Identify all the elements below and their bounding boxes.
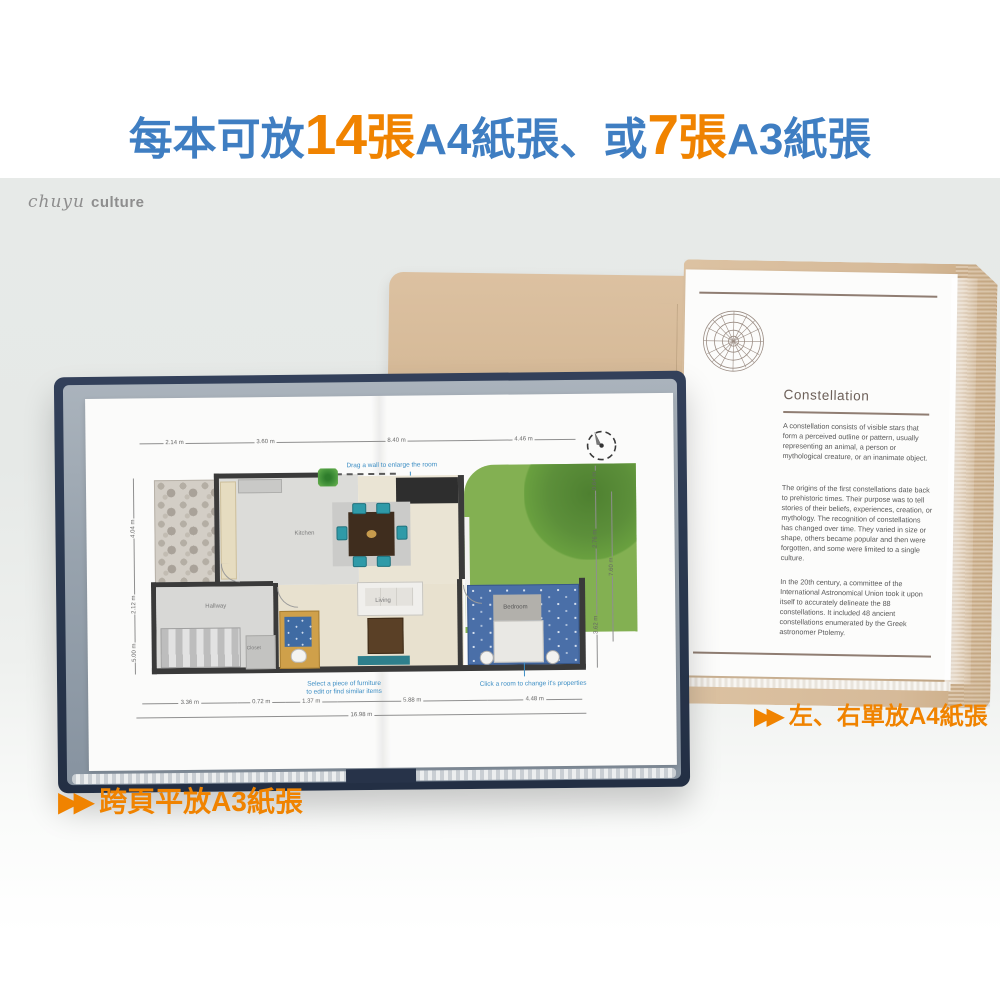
a3-floorplan-sheet: 2.14 m 3.60 m 8.40 m 4.46 m Drag a wall … bbox=[85, 393, 677, 771]
tv-console bbox=[367, 618, 403, 654]
dining-chair bbox=[352, 503, 366, 514]
constellation-page: Constellation A constellation consists o… bbox=[679, 269, 958, 680]
dim-top-3: 8.40 m bbox=[321, 437, 471, 445]
brand-script: chuyu bbox=[28, 192, 85, 212]
a3-folder-inner: 2.14 m 3.60 m 8.40 m 4.46 m Drag a wall … bbox=[63, 379, 681, 785]
dim-right-2: 2.76 m bbox=[592, 496, 599, 582]
caption-a3-label: 跨頁平放A3紙張 bbox=[99, 786, 303, 817]
garden-tree bbox=[524, 463, 638, 560]
bathroom-rug bbox=[284, 617, 311, 647]
dim-bottom-1: 3.36 m bbox=[142, 699, 237, 706]
page-bottom-rule bbox=[693, 652, 931, 658]
dim-left-2: 2.12 m bbox=[131, 578, 138, 630]
stairs bbox=[160, 627, 240, 668]
wall-bedroom-right bbox=[579, 578, 586, 668]
closet-floor bbox=[246, 635, 276, 669]
floor-plan: 2.14 m 3.60 m 8.40 m 4.46 m Drag a wall … bbox=[125, 411, 643, 756]
page-title: 每本可放14張A4紙張、或7張A3紙張 bbox=[0, 98, 1000, 169]
dim-bottom-3: 1.37 m bbox=[285, 698, 337, 705]
dining-chair bbox=[377, 556, 391, 567]
dim-left-1: 4.04 m bbox=[130, 478, 137, 578]
dim-bottom-5: 4.48 m bbox=[487, 696, 582, 703]
top-banner: 每本可放14張A4紙張、或7張A3紙張 bbox=[0, 0, 1000, 178]
wall-living-bedroom bbox=[457, 579, 463, 669]
dining-chair bbox=[336, 526, 347, 540]
toilet bbox=[291, 649, 307, 663]
table-centerpiece bbox=[366, 530, 376, 538]
dining-chair bbox=[396, 526, 407, 540]
potted-plant bbox=[318, 468, 338, 486]
bed-duvet bbox=[493, 620, 543, 663]
page-top-rule bbox=[699, 292, 937, 298]
bedside-table bbox=[546, 650, 560, 664]
plan-dimensions-bottom: 3.36 m 0.72 m 1.37 m 5.88 m 4.48 m bbox=[142, 696, 582, 707]
caption-a3-arrows-icon: ▶▶ bbox=[58, 786, 89, 817]
dim-top-1: 2.14 m bbox=[140, 440, 210, 447]
title-text-1: 每本可放 bbox=[129, 115, 305, 164]
living-label: Living bbox=[375, 598, 391, 604]
caption-a3: ▶▶跨頁平放A3紙張 bbox=[58, 780, 303, 820]
title-sheets-2: 張 bbox=[678, 111, 727, 165]
dim-right-3: 3.62 m bbox=[593, 582, 600, 668]
page-heading: Constellation bbox=[783, 387, 869, 403]
closet-label: Closet bbox=[247, 645, 261, 651]
media-bench bbox=[358, 656, 410, 666]
a4-folder: Constellation A constellation consists o… bbox=[676, 259, 998, 708]
title-text-3: A3紙張 bbox=[727, 115, 871, 164]
wall-lawn-left bbox=[458, 475, 465, 579]
title-number-14: 14 bbox=[305, 103, 366, 167]
product-photo: chuyuculture bbox=[0, 178, 1000, 1000]
dining-chair bbox=[353, 556, 367, 567]
title-sheets-1: 張 bbox=[366, 111, 415, 165]
page-paragraph-1: A constellation consists of visible star… bbox=[782, 421, 935, 463]
heading-rule bbox=[783, 411, 929, 415]
dining-chair bbox=[376, 503, 390, 514]
a3-spine bbox=[346, 769, 416, 784]
plan-dimensions-top: 2.14 m 3.60 m 8.40 m 4.46 m bbox=[140, 436, 576, 447]
dim-left-3: 5.00 m bbox=[131, 630, 137, 674]
title-text-2: A4紙張、或 bbox=[415, 115, 647, 164]
kitchen-counter-island bbox=[396, 477, 458, 504]
dim-bottom-2: 0.72 m bbox=[237, 699, 285, 706]
dim-bottom-4: 5.88 m bbox=[337, 697, 487, 705]
annotation-click: Click a room to change it's properties bbox=[458, 680, 608, 690]
annotation-drag: Drag a wall to enlarge the room bbox=[322, 461, 462, 471]
dim-top-4: 4.46 m bbox=[471, 436, 575, 443]
brand-word: culture bbox=[91, 194, 145, 211]
dim-top-2: 3.60 m bbox=[210, 439, 322, 446]
caption-a4-label: 左、右單放A4紙張 bbox=[789, 703, 988, 730]
dim-right-1: 0.64 m bbox=[592, 466, 598, 496]
annotation-select-line2: to edit or find similar items bbox=[274, 688, 414, 698]
plan-dimensions-left: 4.04 m 2.12 m 5.00 m bbox=[130, 478, 138, 674]
a3-folder: 2.14 m 3.60 m 8.40 m 4.46 m Drag a wall … bbox=[54, 371, 690, 794]
compass-icon bbox=[583, 427, 619, 463]
title-number-7: 7 bbox=[647, 103, 678, 167]
annotation-select: Select a piece of furniture to edit or f… bbox=[274, 680, 414, 698]
caption-a4-arrows-icon: ▶▶ bbox=[754, 703, 779, 730]
page-paragraph-3: In the 20th century, a committee of the … bbox=[779, 577, 932, 639]
plan-dimension-total: 16.98 m bbox=[136, 710, 586, 721]
stone-patio bbox=[154, 480, 217, 587]
zodiac-wheel-icon bbox=[700, 308, 767, 375]
bedside-table bbox=[480, 651, 494, 665]
brand-watermark: chuyuculture bbox=[28, 192, 145, 212]
kitchen-appliances bbox=[238, 479, 282, 493]
page-paragraph-2: The origins of the first constellations … bbox=[781, 483, 934, 565]
bedroom-label: Bedroom bbox=[503, 604, 527, 610]
dim-total: 16.98 m bbox=[136, 710, 586, 721]
caption-a4: ▶▶左、右單放A4紙張 bbox=[754, 696, 988, 731]
kitchen-label: Kitchen bbox=[294, 531, 314, 537]
hallway-label: Hallway bbox=[205, 604, 226, 610]
annotation-click-pointer bbox=[524, 662, 525, 676]
